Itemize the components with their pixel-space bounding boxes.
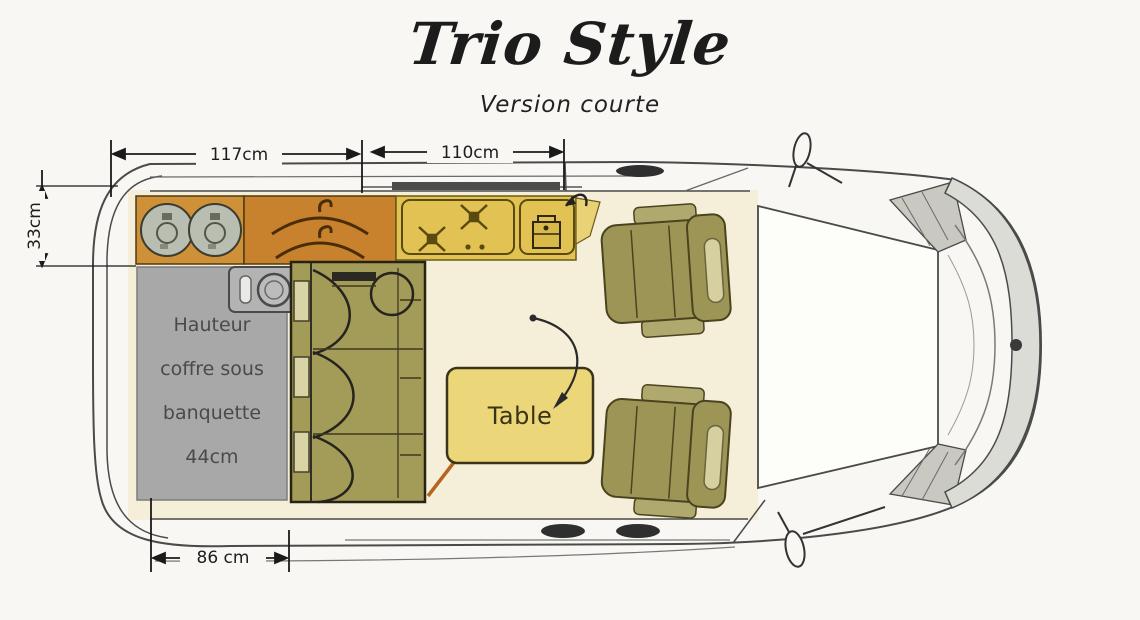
dim-label-33cm: 33cm: [25, 191, 45, 261]
wardrobe: [244, 196, 396, 264]
table-label: Table: [447, 368, 593, 463]
storage-note-line: Hauteur: [137, 303, 287, 347]
dim-label-110cm: 110cm: [427, 143, 513, 163]
storage-note-line: banquette: [137, 391, 287, 435]
kitchen-gas-cabinet: [136, 196, 244, 264]
sink-icon: [258, 274, 290, 306]
storage-note-line: coffre sous: [137, 347, 287, 391]
cab-front: [758, 178, 1040, 508]
floorplan-canvas: Trio Style Version courte: [0, 0, 1140, 620]
mirror-icon: [778, 507, 885, 568]
kitchen-counter: [396, 195, 600, 260]
storage-note-line: 44cm: [137, 435, 287, 479]
roof-gutter-line: [150, 176, 640, 177]
dim-label-117cm: 117cm: [196, 145, 282, 165]
b-pillar-line: [565, 163, 566, 191]
counter-top-strip: [362, 182, 582, 190]
hood-contour: [955, 225, 995, 465]
gas-bottle-icon: [189, 204, 241, 256]
faucet-icon: [240, 276, 251, 303]
door-handle-icon: [616, 524, 660, 538]
storage-note: Hauteur coffre sous banquette 44cm: [137, 303, 287, 479]
gas-bottle-icon: [141, 204, 193, 256]
door-handle-icon: [616, 165, 664, 177]
hood-contour: [948, 255, 974, 435]
front-emblem: [1010, 339, 1022, 351]
door-handle-icon: [541, 524, 585, 538]
door-frame-line: [685, 168, 748, 191]
mirror-icon: [789, 132, 842, 187]
bench-seat: [291, 262, 425, 502]
windshield: [758, 206, 938, 488]
dim-label-86cm: 86 cm: [180, 548, 266, 568]
bench-hinge: [332, 272, 376, 281]
